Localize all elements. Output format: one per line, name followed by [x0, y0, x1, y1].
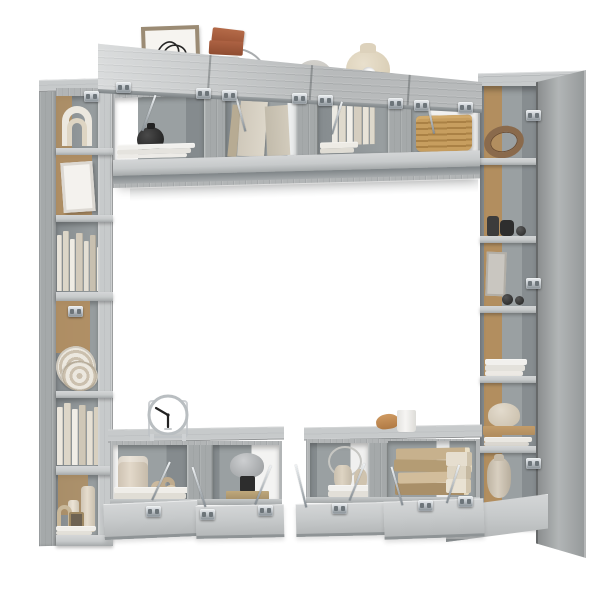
hinge-icon [526, 458, 541, 469]
lying-book-stack [320, 140, 364, 153]
table-clock [146, 394, 190, 440]
divider [368, 443, 388, 497]
book-row [57, 227, 98, 291]
left-bookcase-side-panel [39, 87, 57, 546]
book-spine [64, 403, 71, 465]
thin-book-stack [484, 436, 534, 446]
book-spine [354, 102, 362, 144]
hinge-icon [196, 88, 211, 99]
shelf [56, 466, 113, 475]
white-book-stack [485, 352, 533, 376]
hinge-icon [200, 509, 215, 520]
book-spine [79, 405, 86, 465]
bottom-compartment-b2 [388, 441, 476, 499]
hinge-icon [414, 100, 429, 111]
arch-inner [67, 118, 87, 146]
dark-jar-1 [487, 216, 499, 236]
canvas-board-large [237, 101, 268, 157]
hinge-icon [318, 95, 333, 106]
shelf [56, 148, 113, 155]
hinge-icon [292, 93, 307, 104]
hinge-icon [418, 500, 433, 511]
black-vase-neck [147, 123, 155, 129]
clock-foot [150, 434, 154, 441]
book-spine [87, 411, 93, 465]
left-compartment-6 [56, 475, 98, 535]
stone-ball [502, 294, 513, 305]
clock-face [146, 394, 190, 438]
product-photo-tv-wall-unit [0, 0, 600, 600]
book-spine [57, 235, 62, 291]
dark-jar-2 [500, 220, 514, 236]
stone-ball [516, 226, 526, 236]
donut-vase-neck [360, 43, 376, 53]
shelf [480, 376, 538, 383]
ceramic-plate-small [60, 360, 98, 391]
shelf [480, 306, 538, 313]
book-spine [363, 106, 369, 144]
book-spine [370, 102, 375, 144]
mushroom-lamp-dome [230, 453, 264, 478]
leaning-frame [60, 161, 95, 213]
book-spine [70, 239, 75, 291]
stacked-item [446, 452, 472, 466]
stacked-item [320, 148, 354, 154]
book-spine [76, 233, 83, 291]
book-spine [90, 235, 96, 291]
hinge-icon [332, 503, 347, 514]
bottom-compartment-a1 [113, 445, 187, 499]
left-compartment-5 [56, 398, 98, 466]
terracotta-box-bottom [209, 40, 244, 56]
shelf [56, 292, 113, 301]
book-stack [114, 486, 187, 499]
base-book-stack [56, 524, 98, 535]
white-book-stack [117, 142, 201, 159]
hinge-icon [116, 82, 131, 93]
bottom-cabinet-a-body [110, 441, 282, 505]
hinge-icon [458, 496, 473, 507]
left-compartment-3 [56, 222, 98, 292]
small-leaning-frame [485, 252, 507, 297]
wood-tray [483, 426, 535, 435]
book-spine [57, 407, 63, 465]
right-cabinet-open-door [536, 70, 586, 558]
arch-sculpture [62, 106, 94, 148]
stone-ball [515, 296, 524, 305]
top-compartment-1 [115, 96, 204, 160]
hinge-icon [84, 91, 99, 102]
hinge-icon [258, 505, 273, 516]
shelf [56, 215, 113, 222]
clock-foot [182, 434, 186, 441]
ceramic-urn [487, 458, 511, 498]
hinge-icon [458, 102, 473, 113]
urn-neck [494, 454, 504, 461]
divider [204, 95, 226, 158]
book-stack [328, 484, 368, 497]
book-spine [63, 231, 69, 291]
wood-block [226, 491, 269, 499]
hinge-icon [68, 306, 83, 317]
canvas-board-small [265, 105, 291, 157]
hinge-icon [222, 90, 237, 101]
wicker-basket [416, 115, 472, 152]
left-compartment-2 [56, 155, 98, 215]
shelf [480, 158, 538, 165]
bottom-compartment-b1 [310, 443, 368, 497]
book-spine [72, 409, 78, 465]
book-spine [94, 407, 98, 465]
shelf [56, 391, 113, 398]
shelf [480, 446, 538, 453]
book-spine [97, 247, 98, 291]
book-row [57, 401, 98, 465]
hinge-icon [146, 506, 161, 517]
book-spine [84, 241, 89, 291]
hinge-icon [526, 278, 541, 289]
shelf [480, 236, 538, 243]
hinge-icon [526, 110, 541, 121]
hinge-icon [388, 98, 403, 109]
ceramic-bowl [488, 403, 520, 427]
white-mug [397, 410, 416, 432]
